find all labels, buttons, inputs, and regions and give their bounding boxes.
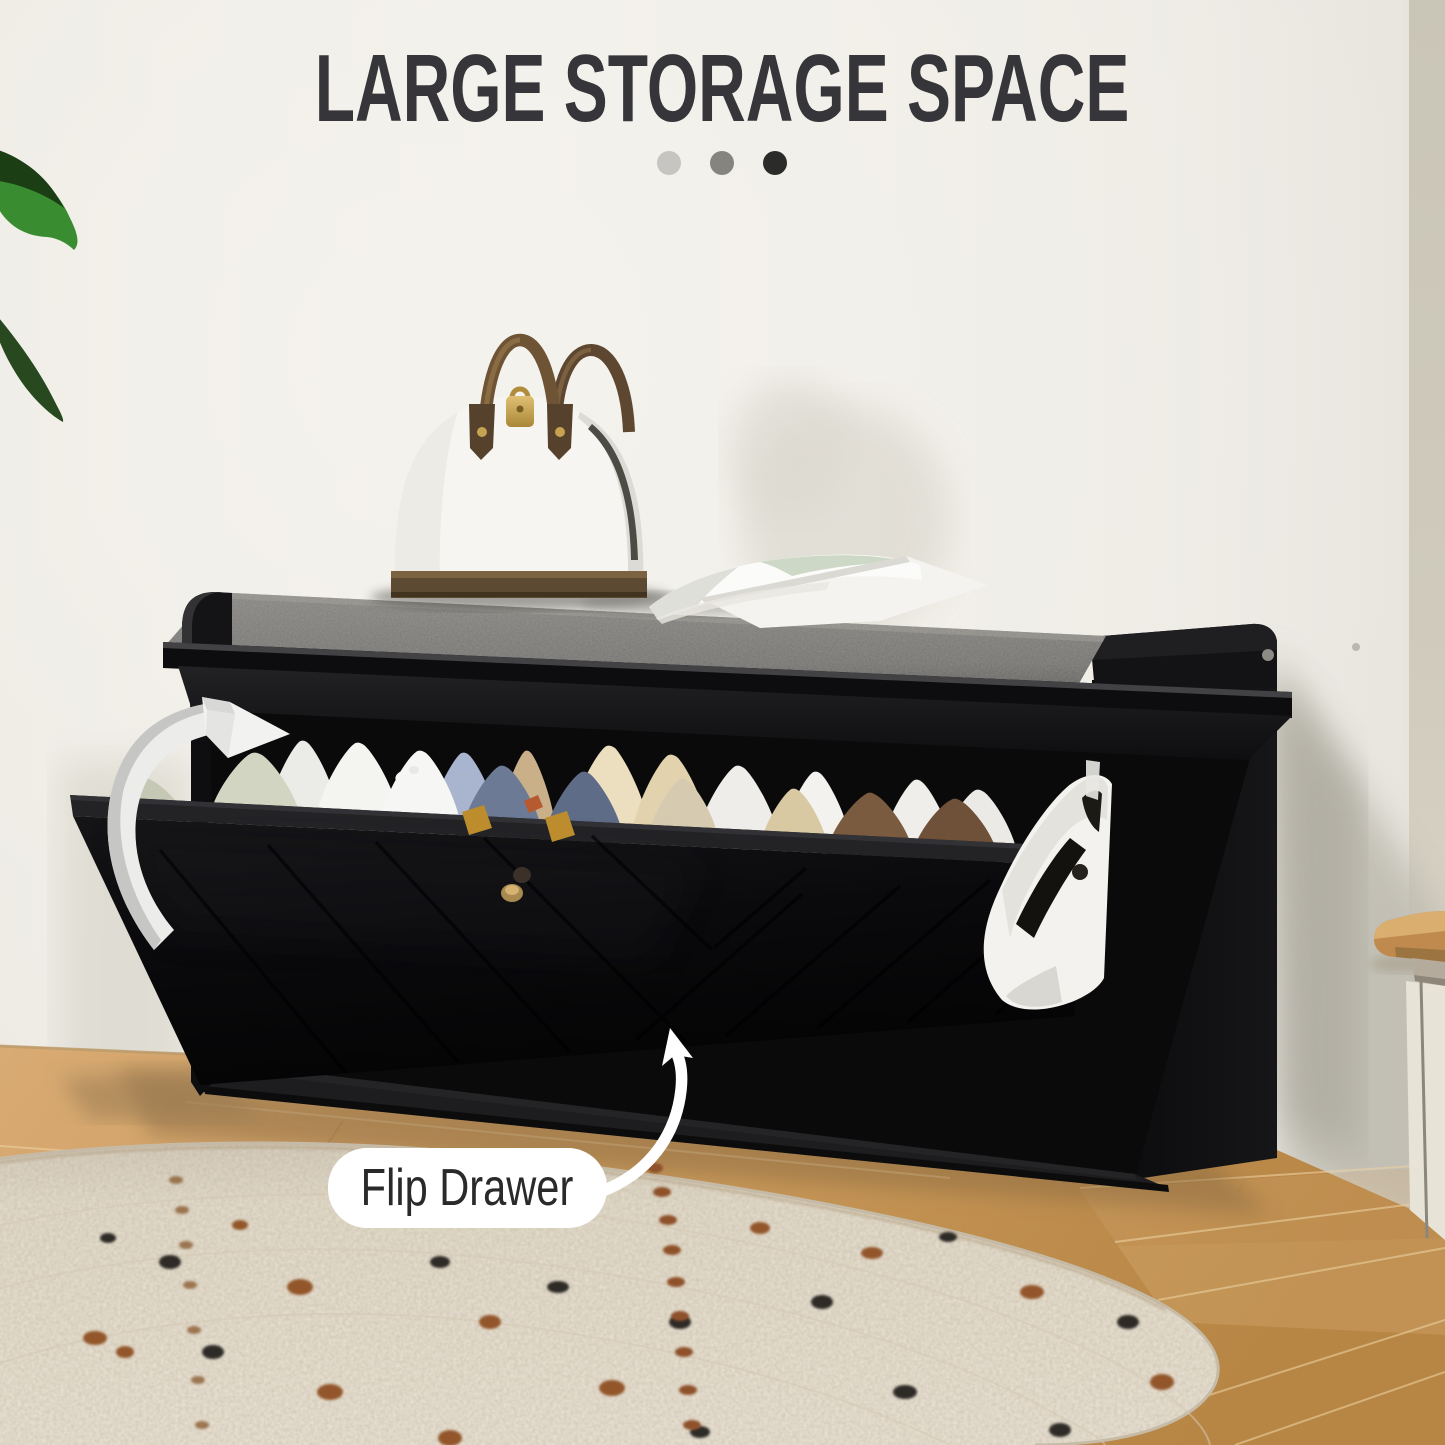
svg-text:Flip Drawer: Flip Drawer (361, 1158, 574, 1217)
svg-text:LARGE STORAGE SPACE: LARGE STORAGE SPACE (315, 35, 1130, 142)
